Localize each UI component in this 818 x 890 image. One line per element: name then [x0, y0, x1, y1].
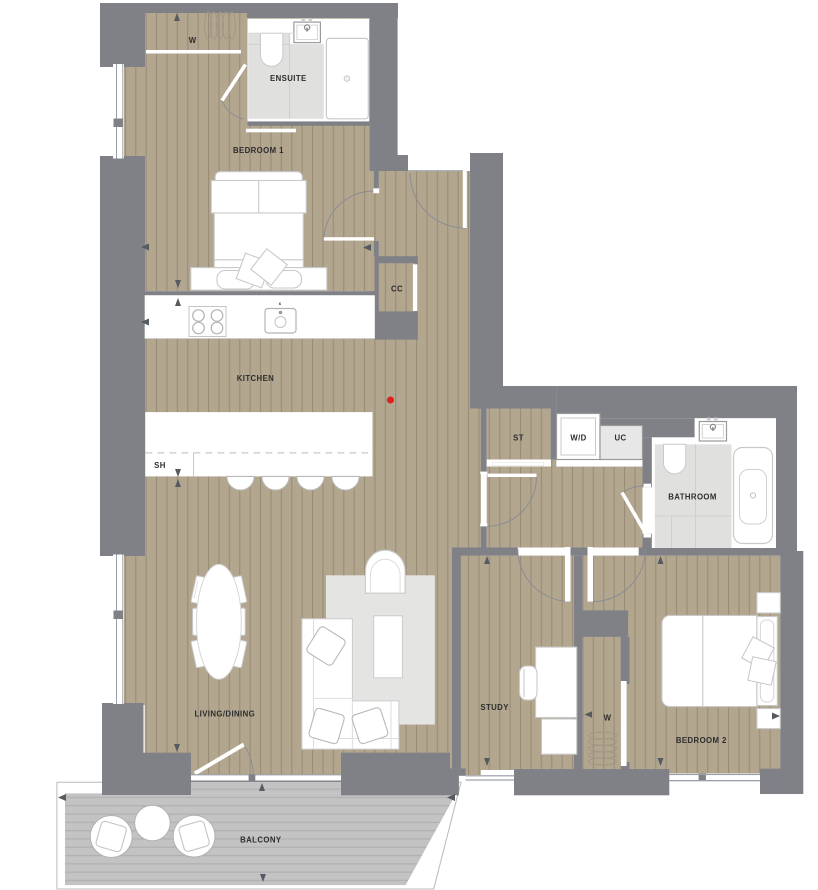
svg-text:ENSUITE: ENSUITE	[270, 74, 307, 83]
svg-text:BEDROOM 1: BEDROOM 1	[233, 146, 284, 155]
svg-text:ST: ST	[513, 434, 524, 443]
svg-text:LIVING/DINING: LIVING/DINING	[194, 710, 255, 719]
svg-text:BATHROOM: BATHROOM	[668, 493, 717, 502]
svg-text:KITCHEN: KITCHEN	[237, 374, 274, 383]
svg-text:BEDROOM 2: BEDROOM 2	[676, 736, 727, 745]
svg-text:SH: SH	[154, 461, 166, 470]
svg-text:W: W	[604, 714, 612, 723]
svg-text:UC: UC	[614, 434, 626, 443]
svg-text:CC: CC	[391, 285, 403, 294]
svg-text:STUDY: STUDY	[480, 703, 509, 712]
svg-text:W: W	[189, 36, 197, 45]
svg-text:BALCONY: BALCONY	[240, 836, 282, 845]
svg-text:W/D: W/D	[570, 434, 586, 443]
